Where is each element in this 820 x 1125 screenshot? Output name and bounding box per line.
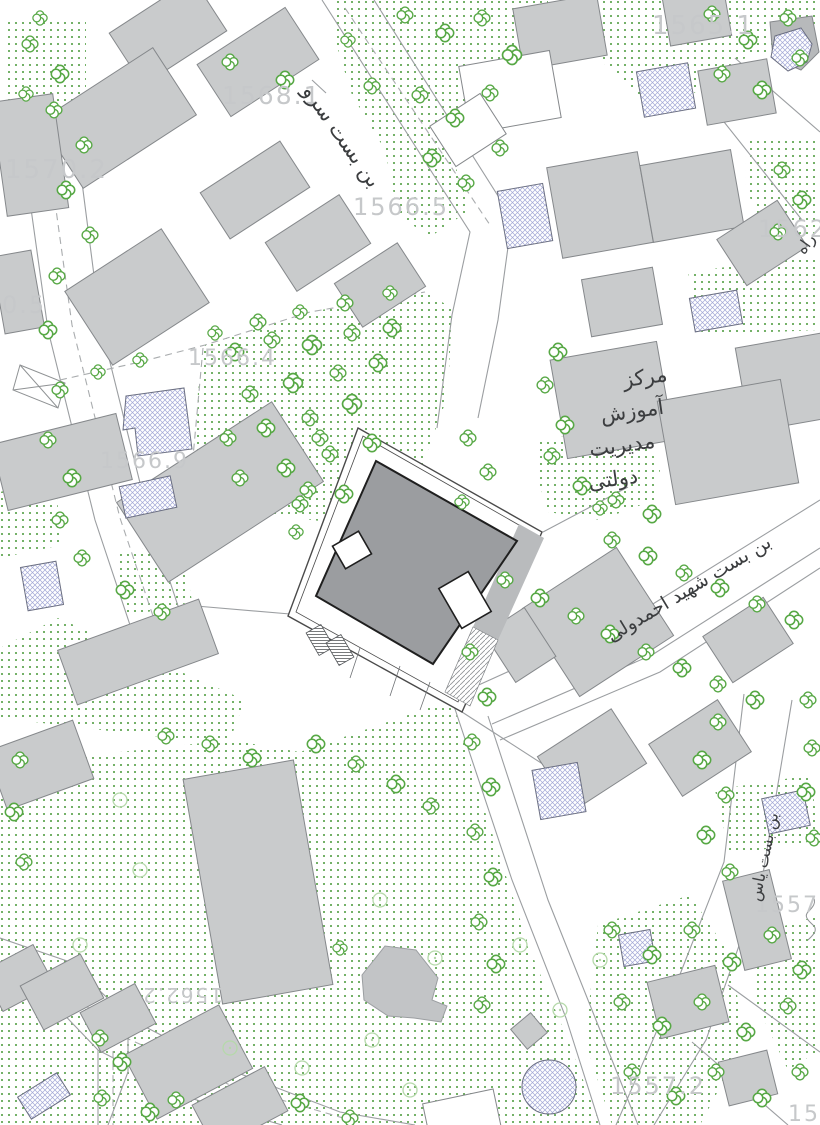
elevation-label: 1566.9 bbox=[100, 449, 189, 474]
elevation-label: 1566.4 bbox=[188, 346, 277, 371]
elevation-label: 1557.2 bbox=[610, 1072, 706, 1100]
map-canvas: 1565.1 1568.1 1570.2 1566.5 1562 0.5 156… bbox=[0, 0, 820, 1125]
elevation-label: 1557 bbox=[788, 1102, 820, 1125]
elevation-label: 1566.5 bbox=[353, 193, 449, 221]
building-footprint bbox=[582, 267, 663, 337]
building-footprint bbox=[657, 379, 798, 504]
elevation-label: 1562.2 bbox=[141, 983, 223, 1007]
site-plan-map: 1565.1 1568.1 1570.2 1566.5 1562 0.5 156… bbox=[0, 0, 820, 1125]
elevation-label: 0.5 bbox=[2, 291, 46, 319]
hatched-building bbox=[497, 183, 552, 248]
elevation-label: 1565.1 bbox=[652, 11, 755, 41]
hatched-circle bbox=[522, 1060, 576, 1114]
hatched-building bbox=[532, 762, 586, 819]
elevation-label: 1570.2 bbox=[5, 155, 108, 185]
hatched-building bbox=[636, 63, 695, 117]
building-footprint bbox=[640, 150, 744, 243]
hatched-building bbox=[21, 561, 64, 611]
building-footprint bbox=[547, 152, 654, 259]
